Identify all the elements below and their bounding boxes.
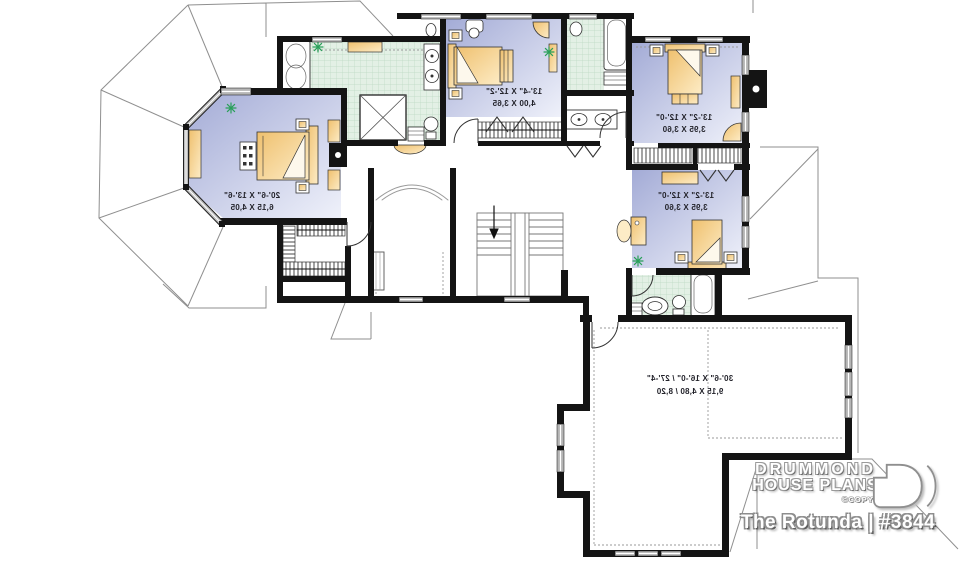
shower — [360, 95, 406, 140]
rug — [394, 145, 426, 154]
bedroom-4-desk — [617, 217, 646, 245]
bath-4-toilet — [673, 296, 686, 316]
master-dresser — [240, 142, 256, 170]
door-master-bedroom — [347, 222, 371, 246]
floor-plan-sheet: 20'-6" X 13'-6" 6,15 X 4,05 13'-4" X 12'… — [0, 0, 960, 569]
bonus-room-dim-metric: 9,15 X 4,80 / 8,20 — [656, 387, 723, 396]
master-bed — [257, 126, 318, 184]
bedroom-3-shelf — [731, 76, 740, 108]
plant-icon — [313, 42, 323, 52]
bedroom-4-dim-imperial: 13'-2" X 12'-0" — [658, 191, 714, 200]
plant-icon — [226, 103, 236, 113]
plant-icon — [633, 256, 643, 266]
bedroom-3-dim-imperial: 13'-2" X 12'-0" — [656, 113, 712, 122]
bedroom-4-bed — [688, 220, 726, 270]
bedroom-4-dresser — [662, 172, 698, 184]
bath-4-sink — [642, 297, 668, 315]
master-bedroom-dim-imperial: 20'-6" X 13'-6" — [224, 191, 280, 200]
closet-rack — [634, 148, 692, 163]
drummond-d-mark-icon — [872, 461, 942, 511]
linen-steps — [408, 127, 424, 141]
fireplace-flue — [753, 86, 760, 93]
fireplace-flue — [335, 152, 341, 158]
master-bedroom-dim-metric: 6,15 X 4,05 — [230, 203, 273, 212]
master-vanity — [424, 24, 440, 91]
plan-title: The Rotunda | #3844 — [736, 512, 940, 534]
bath-2-sink — [570, 22, 582, 36]
bath-counter — [348, 42, 382, 52]
door-bonus-room — [592, 322, 618, 348]
bedroom-2-dim-metric: 4,00 X 3,65 — [492, 99, 535, 108]
pedestal-sink — [424, 117, 438, 139]
master-window-seat — [189, 130, 201, 178]
closet-rack — [283, 226, 295, 262]
closet-rack — [697, 148, 741, 163]
bath-2-tub — [604, 16, 629, 85]
bedroom-2-bed — [448, 44, 513, 88]
master-cabinet-bottom — [328, 170, 340, 190]
master-cabinet-top — [328, 120, 340, 142]
hall-bath-vanity — [565, 110, 617, 129]
staircase — [477, 213, 563, 296]
door-bedroom-2 — [454, 119, 478, 143]
bedroom-2-dim-imperial: 13'-4" X 12'-2" — [486, 87, 542, 96]
bonus-room-dim-imperial: 30'-6" X 16'-0" / 27'-4" — [647, 374, 733, 383]
arch-opening — [376, 185, 448, 200]
bath-4-tub — [691, 271, 715, 317]
master-tub — [282, 40, 310, 94]
bedroom-3-dim-metric: 3,95 X 3,60 — [662, 125, 705, 134]
bedroom-4-dim-metric: 3,95 X 3,60 — [664, 203, 707, 212]
plant-icon — [544, 47, 554, 57]
